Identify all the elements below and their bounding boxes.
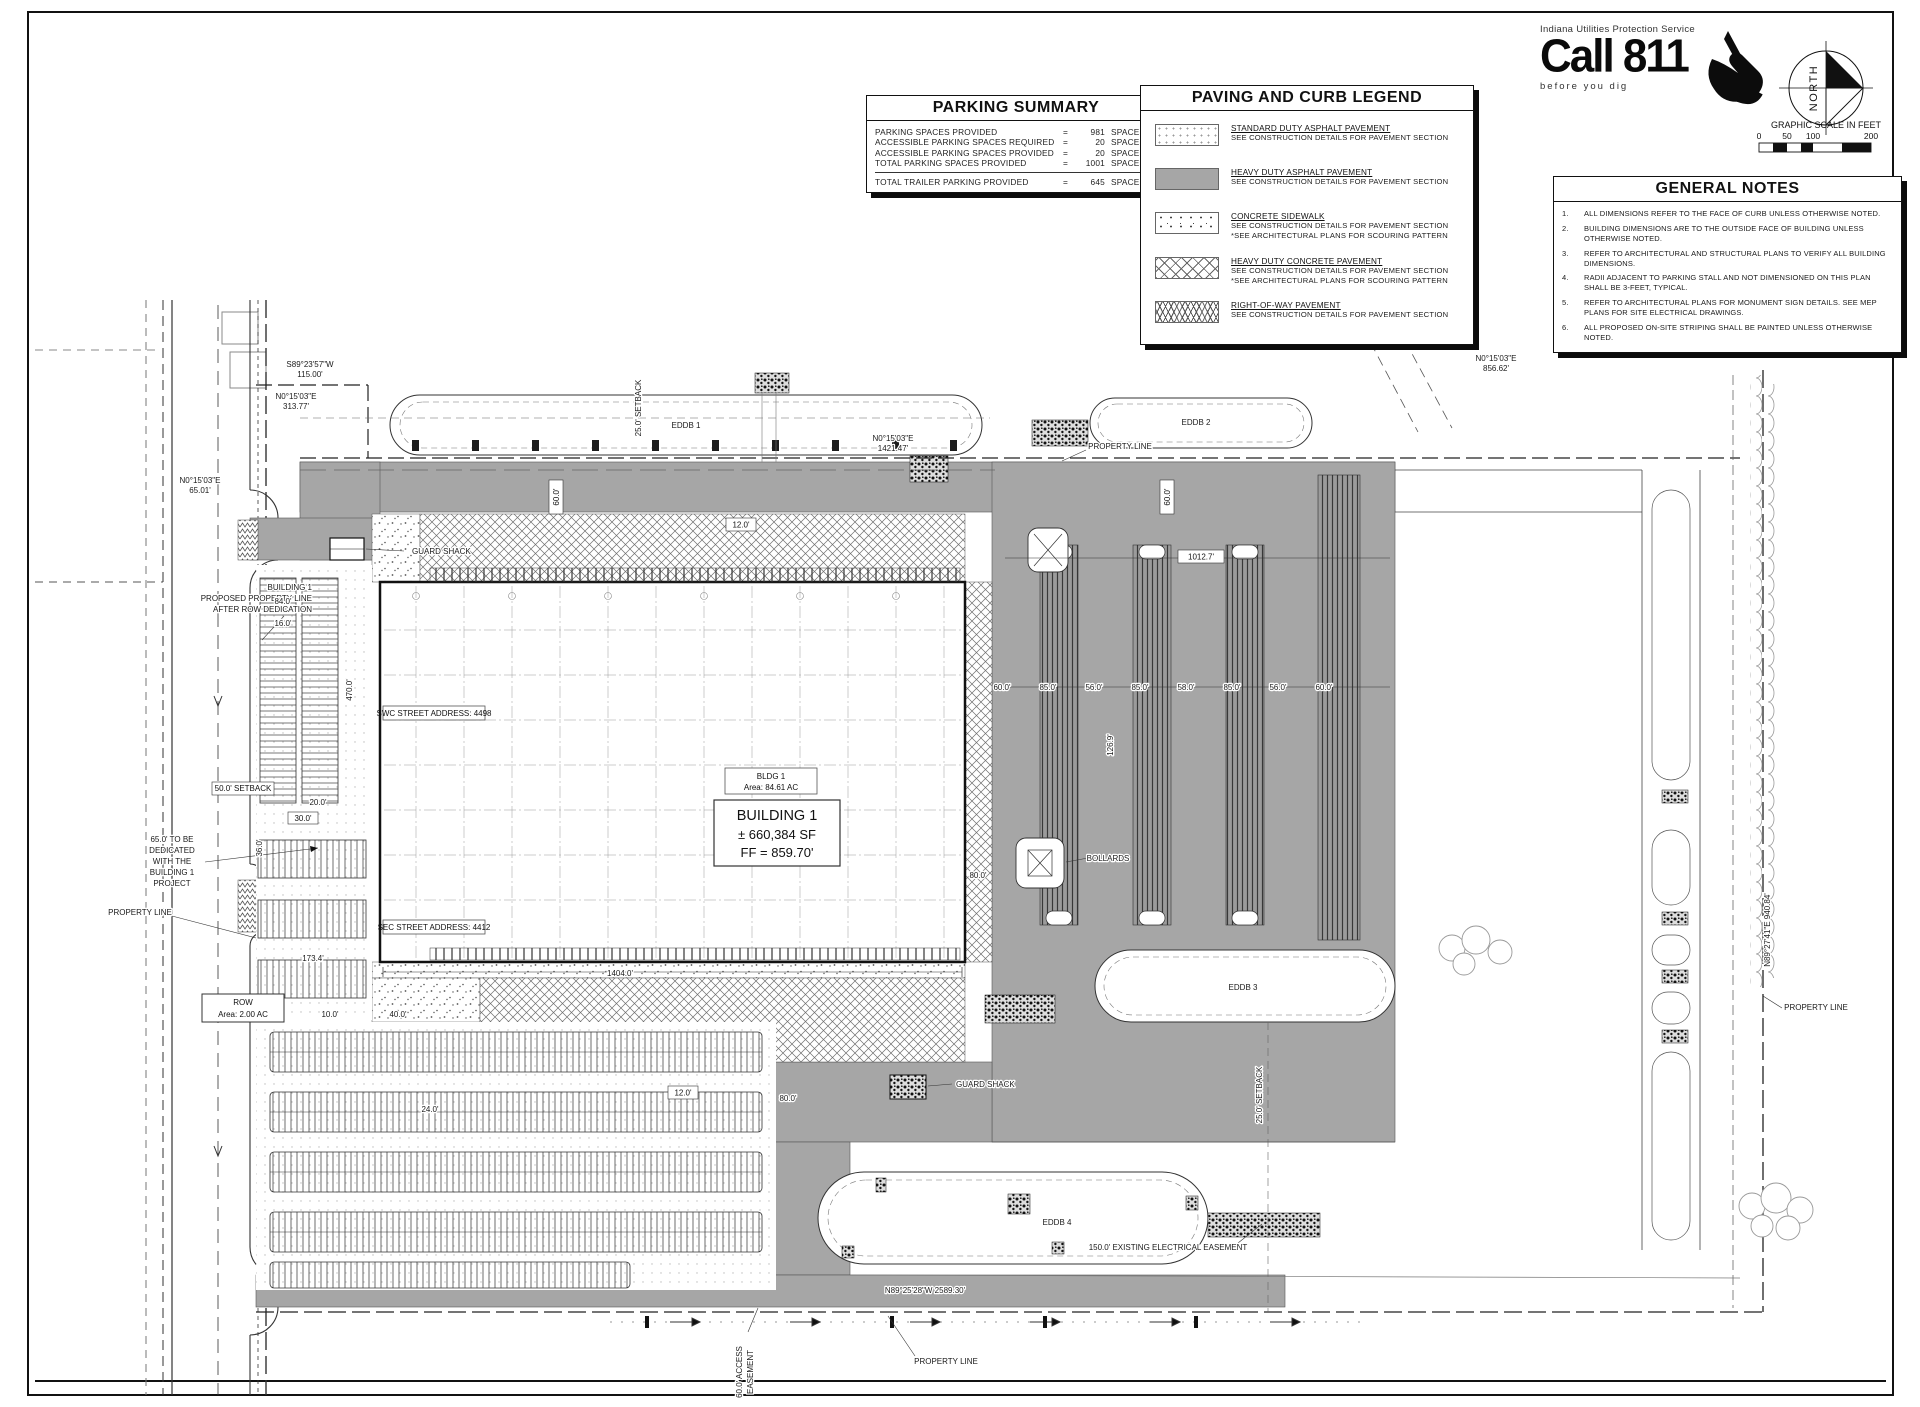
bearing-left-small: N0°15'03"E [180,476,221,485]
general-notes-panel: GENERAL NOTES 1. ALL DIMENSIONS REFER TO… [1553,176,1902,353]
legend-note: *SEE ARCHITECTURAL PLANS FOR SCOURING PA… [1231,276,1448,286]
property-line-label-top: PROPERTY LINE [1088,442,1152,451]
legend-name: CONCRETE SIDEWALK [1231,212,1448,221]
legend-item: CONCRETE SIDEWALK SEE CONSTRUCTION DETAI… [1155,212,1463,241]
eddb1-label: EDDB 1 [672,421,701,430]
row-eq: = [1063,158,1077,168]
scale-tick-50: 50 [1782,131,1792,141]
note-text: ALL DIMENSIONS REFER TO THE FACE OF CURB… [1584,209,1891,219]
note-text: BUILDING DIMENSIONS ARE TO THE OUTSIDE F… [1584,224,1891,244]
ded-line1: 65.0' TO BE [150,835,193,844]
row-value: 20 [1077,137,1111,147]
sec-address-label: SEC STREET ADDRESS: 4412 [378,923,491,932]
guard-shack-2-label: GUARD SHACK [956,1080,1015,1089]
bearing-top-left-1-dist: 115.00' [297,370,323,379]
bearing-top-left-2: N0°15'03"E [276,392,317,401]
row-value: 20 [1077,148,1111,158]
row-value: 645 [1077,177,1111,187]
row-label: ACCESSIBLE PARKING SPACES REQUIRED [875,137,1063,147]
concrete-sidewalk-swatch [1155,212,1219,234]
dim-126: 126.9' [1106,734,1115,756]
note-text: ALL PROPOSED ON-SITE STRIPING SHALL BE P… [1584,323,1891,343]
heavy-concrete-swatch [1155,257,1219,279]
row-label: TOTAL TRAILER PARKING PROVIDED [875,177,1063,187]
row-value: 981 [1077,127,1111,137]
swc-address-label: SWC STREET ADDRESS: 4498 [377,709,493,718]
guard-shack-1-label: GUARD SHACK [412,547,471,556]
row-eq: = [1063,177,1077,187]
ded-line4: BUILDING 1 [150,868,195,877]
legend-note: SEE CONSTRUCTION DETAILS FOR PAVEMENT SE… [1231,221,1448,231]
dim-40: 40.0' [389,1010,407,1019]
parking-row: PARKING SPACES PROVIDED = 981 SPACES [875,127,1157,137]
parking-total-row: TOTAL TRAILER PARKING PROVIDED = 645 SPA… [875,177,1157,187]
scale-tick-100: 100 [1806,131,1820,141]
dim-84: 84.0' [274,597,292,606]
parking-row: ACCESSIBLE PARKING SPACES PROVIDED = 20 … [875,148,1157,158]
note-number: 3. [1562,249,1584,269]
property-line-label-left: PROPERTY LINE [108,908,172,917]
legend-item: STANDARD DUTY ASPHALT PAVEMENT SEE CONST… [1155,124,1463,146]
note-number: 4. [1562,273,1584,293]
scale-title: GRAPHIC SCALE IN FEET [1771,120,1882,130]
note-text: RADII ADJACENT TO PARKING STALL AND NOT … [1584,273,1891,293]
parking-row: TOTAL PARKING SPACES PROVIDED = 1001 SPA… [875,158,1157,168]
north-label: NORTH [1808,65,1820,111]
building-area-sf: ± 660,384 SF [738,827,816,842]
par-line2: PROPOSED PROPERTY LINE [201,594,312,603]
note-item: 6. ALL PROPOSED ON-SITE STRIPING SHALL B… [1562,323,1891,343]
heavy-asphalt-swatch [1155,168,1219,190]
eddb2-label: EDDB 2 [1182,418,1211,427]
graphic-scale: GRAPHIC SCALE IN FEET 0 50 100 200 [1757,120,1882,152]
note-number: 1. [1562,209,1584,219]
dim-36: 36.0' [255,839,264,857]
setback-25-top: 25.0' SETBACK [634,379,643,436]
note-item: 1. ALL DIMENSIONS REFER TO THE FACE OF C… [1562,209,1891,219]
dim-12-north: 12.0' [732,521,750,530]
scale-tick-0: 0 [1757,131,1762,141]
legend-item: HEAVY DUTY ASPHALT PAVEMENT SEE CONSTRUC… [1155,168,1463,190]
dim-173: 173.4' [302,954,324,963]
note-text: REFER TO ARCHITECTURAL AND STRUCTURAL PL… [1584,249,1891,269]
legend-note: *SEE ARCHITECTURAL PLANS FOR SCOURING PA… [1231,231,1448,241]
bollards-label: BOLLARDS [1087,854,1130,863]
note-number: 5. [1562,298,1584,318]
bearing-top-left-2-dist: 313.77' [283,402,309,411]
scale-tick-200: 200 [1864,131,1878,141]
access-easement-line2: EASEMENT [746,1350,755,1394]
row-pavement-swatch [1155,301,1219,323]
legend-item: RIGHT-OF-WAY PAVEMENT SEE CONSTRUCTION D… [1155,301,1463,323]
access-easement-line1: 60.0' ACCESS [735,1346,744,1398]
bldg-tag-line1: BLDG 1 [757,772,786,781]
dim-row-7: 56.0' [1269,683,1287,692]
bldg-tag-line2: Area: 84.61 AC [744,783,798,792]
bearing-top-right-dist: 856.62' [1483,364,1509,373]
note-number: 6. [1562,323,1584,343]
dim-12-south: 12.0' [674,1089,692,1098]
row-eq: = [1063,137,1077,147]
divider [875,172,1157,173]
legend-name: HEAVY DUTY CONCRETE PAVEMENT [1231,257,1448,266]
row-label: TOTAL PARKING SPACES PROVIDED [875,158,1063,168]
standard-asphalt-swatch [1155,124,1219,146]
bearing-top-mid-dist: 1421.47' [878,444,909,453]
row-value: 1001 [1077,158,1111,168]
site-plan-sheet: BLDG 1 Area: 84.61 AC BUILDING 1 ± 660,3… [0,0,1920,1407]
row-eq: = [1063,148,1077,158]
bearing-right: N89°27'41"E 940.84' [1763,893,1772,967]
bearing-top-mid: N0°15'03"E [873,434,914,443]
legend-note: SEE CONSTRUCTION DETAILS FOR PAVEMENT SE… [1231,133,1448,143]
row-area-label: Area: 2.00 AC [218,1010,268,1019]
legend-name: STANDARD DUTY ASPHALT PAVEMENT [1231,124,1448,133]
note-item: 2. BUILDING DIMENSIONS ARE TO THE OUTSID… [1562,224,1891,244]
dim-1404: 1404.0' [607,969,633,978]
bearing-top-left-1: S89°23'57"W [286,360,334,369]
building-ff-elevation: FF = 859.70' [741,845,814,860]
bearing-left-small-dist: 65.01' [189,486,211,495]
dim-60-north: 60.0' [552,488,561,506]
property-line-label-bottom: PROPERTY LINE [914,1357,978,1366]
par-line3: AFTER ROW DEDICATION [213,605,312,614]
north-and-scale: NORTH GRAPHIC SCALE IN FEET 0 50 100 200 [1735,25,1920,195]
dim-470: 470.0' [345,679,354,701]
dim-20: 20.0' [309,798,327,807]
dim-80-court: 80.0' [969,871,987,880]
dim-24: 24.0' [421,1105,439,1114]
legend-note: SEE CONSTRUCTION DETAILS FOR PAVEMENT SE… [1231,310,1448,320]
legend-title: PAVING AND CURB LEGEND [1141,86,1473,111]
par-line1: BUILDING 1 [268,583,313,592]
setback-25-bottom: 25.0' SETBACK [1255,1066,1264,1123]
ded-line3: WITH THE [153,857,192,866]
parking-summary-panel: PARKING SUMMARY PARKING SPACES PROVIDED … [866,95,1166,193]
row-label: ACCESSIBLE PARKING SPACES PROVIDED [875,148,1063,158]
dim-60-court: 60.0' [1163,488,1172,506]
dim-row-1: 60.0' [993,683,1011,692]
legend-name: HEAVY DUTY ASPHALT PAVEMENT [1231,168,1448,177]
dim-row-4: 85.0' [1131,683,1149,692]
dim-10: 10.0' [321,1010,339,1019]
building-1 [380,568,965,962]
ded-line2: DEDICATED [149,846,195,855]
bearing-bottom: N89°25'28"W 2589.30' [885,1286,966,1295]
general-notes-title: GENERAL NOTES [1554,177,1901,202]
dim-row-2: 85.0' [1039,683,1057,692]
parking-summary-title: PARKING SUMMARY [867,96,1165,121]
setback-50-label: 50.0' SETBACK [215,784,272,793]
dim-row-6: 85.0' [1223,683,1241,692]
paving-legend-panel: PAVING AND CURB LEGEND STANDARD DUTY ASP… [1140,85,1474,345]
dim-1012: 1012.7' [1188,553,1214,562]
electrical-easement-label: 150.0' EXISTING ELECTRICAL EASEMENT [1089,1243,1248,1252]
row-eq: = [1063,127,1077,137]
call-811-logo: Call 811 [1540,34,1688,80]
dim-row-5: 58.0' [1177,683,1195,692]
note-item: 3. REFER TO ARCHITECTURAL AND STRUCTURAL… [1562,249,1891,269]
legend-item: HEAVY DUTY CONCRETE PAVEMENT SEE CONSTRU… [1155,257,1463,286]
row-label: PARKING SPACES PROVIDED [875,127,1063,137]
note-item: 5. REFER TO ARCHITECTURAL PLANS FOR MONU… [1562,298,1891,318]
legend-note: SEE CONSTRUCTION DETAILS FOR PAVEMENT SE… [1231,177,1448,187]
eddb4-label: EDDB 4 [1043,1218,1072,1227]
dim-80-south: 80.0' [779,1094,797,1103]
parking-row: ACCESSIBLE PARKING SPACES REQUIRED = 20 … [875,137,1157,147]
bearing-top-right: N0°15'03"E [1476,354,1517,363]
note-item: 4. RADII ADJACENT TO PARKING STALL AND N… [1562,273,1891,293]
legend-name: RIGHT-OF-WAY PAVEMENT [1231,301,1448,310]
legend-note: SEE CONSTRUCTION DETAILS FOR PAVEMENT SE… [1231,266,1448,276]
property-line-label-right: PROPERTY LINE [1784,1003,1848,1012]
eddb3-label: EDDB 3 [1229,983,1258,992]
dim-30: 30.0' [294,814,312,823]
dim-row-3: 56.0' [1085,683,1103,692]
dim-16: 16.0' [274,619,292,628]
ded-line5: PROJECT [153,879,190,888]
note-number: 2. [1562,224,1584,244]
row-label: ROW [233,998,253,1007]
building-name: BUILDING 1 [737,808,818,824]
dim-row-8: 60.0' [1315,683,1333,692]
note-text: REFER TO ARCHITECTURAL PLANS FOR MONUMEN… [1584,298,1891,318]
